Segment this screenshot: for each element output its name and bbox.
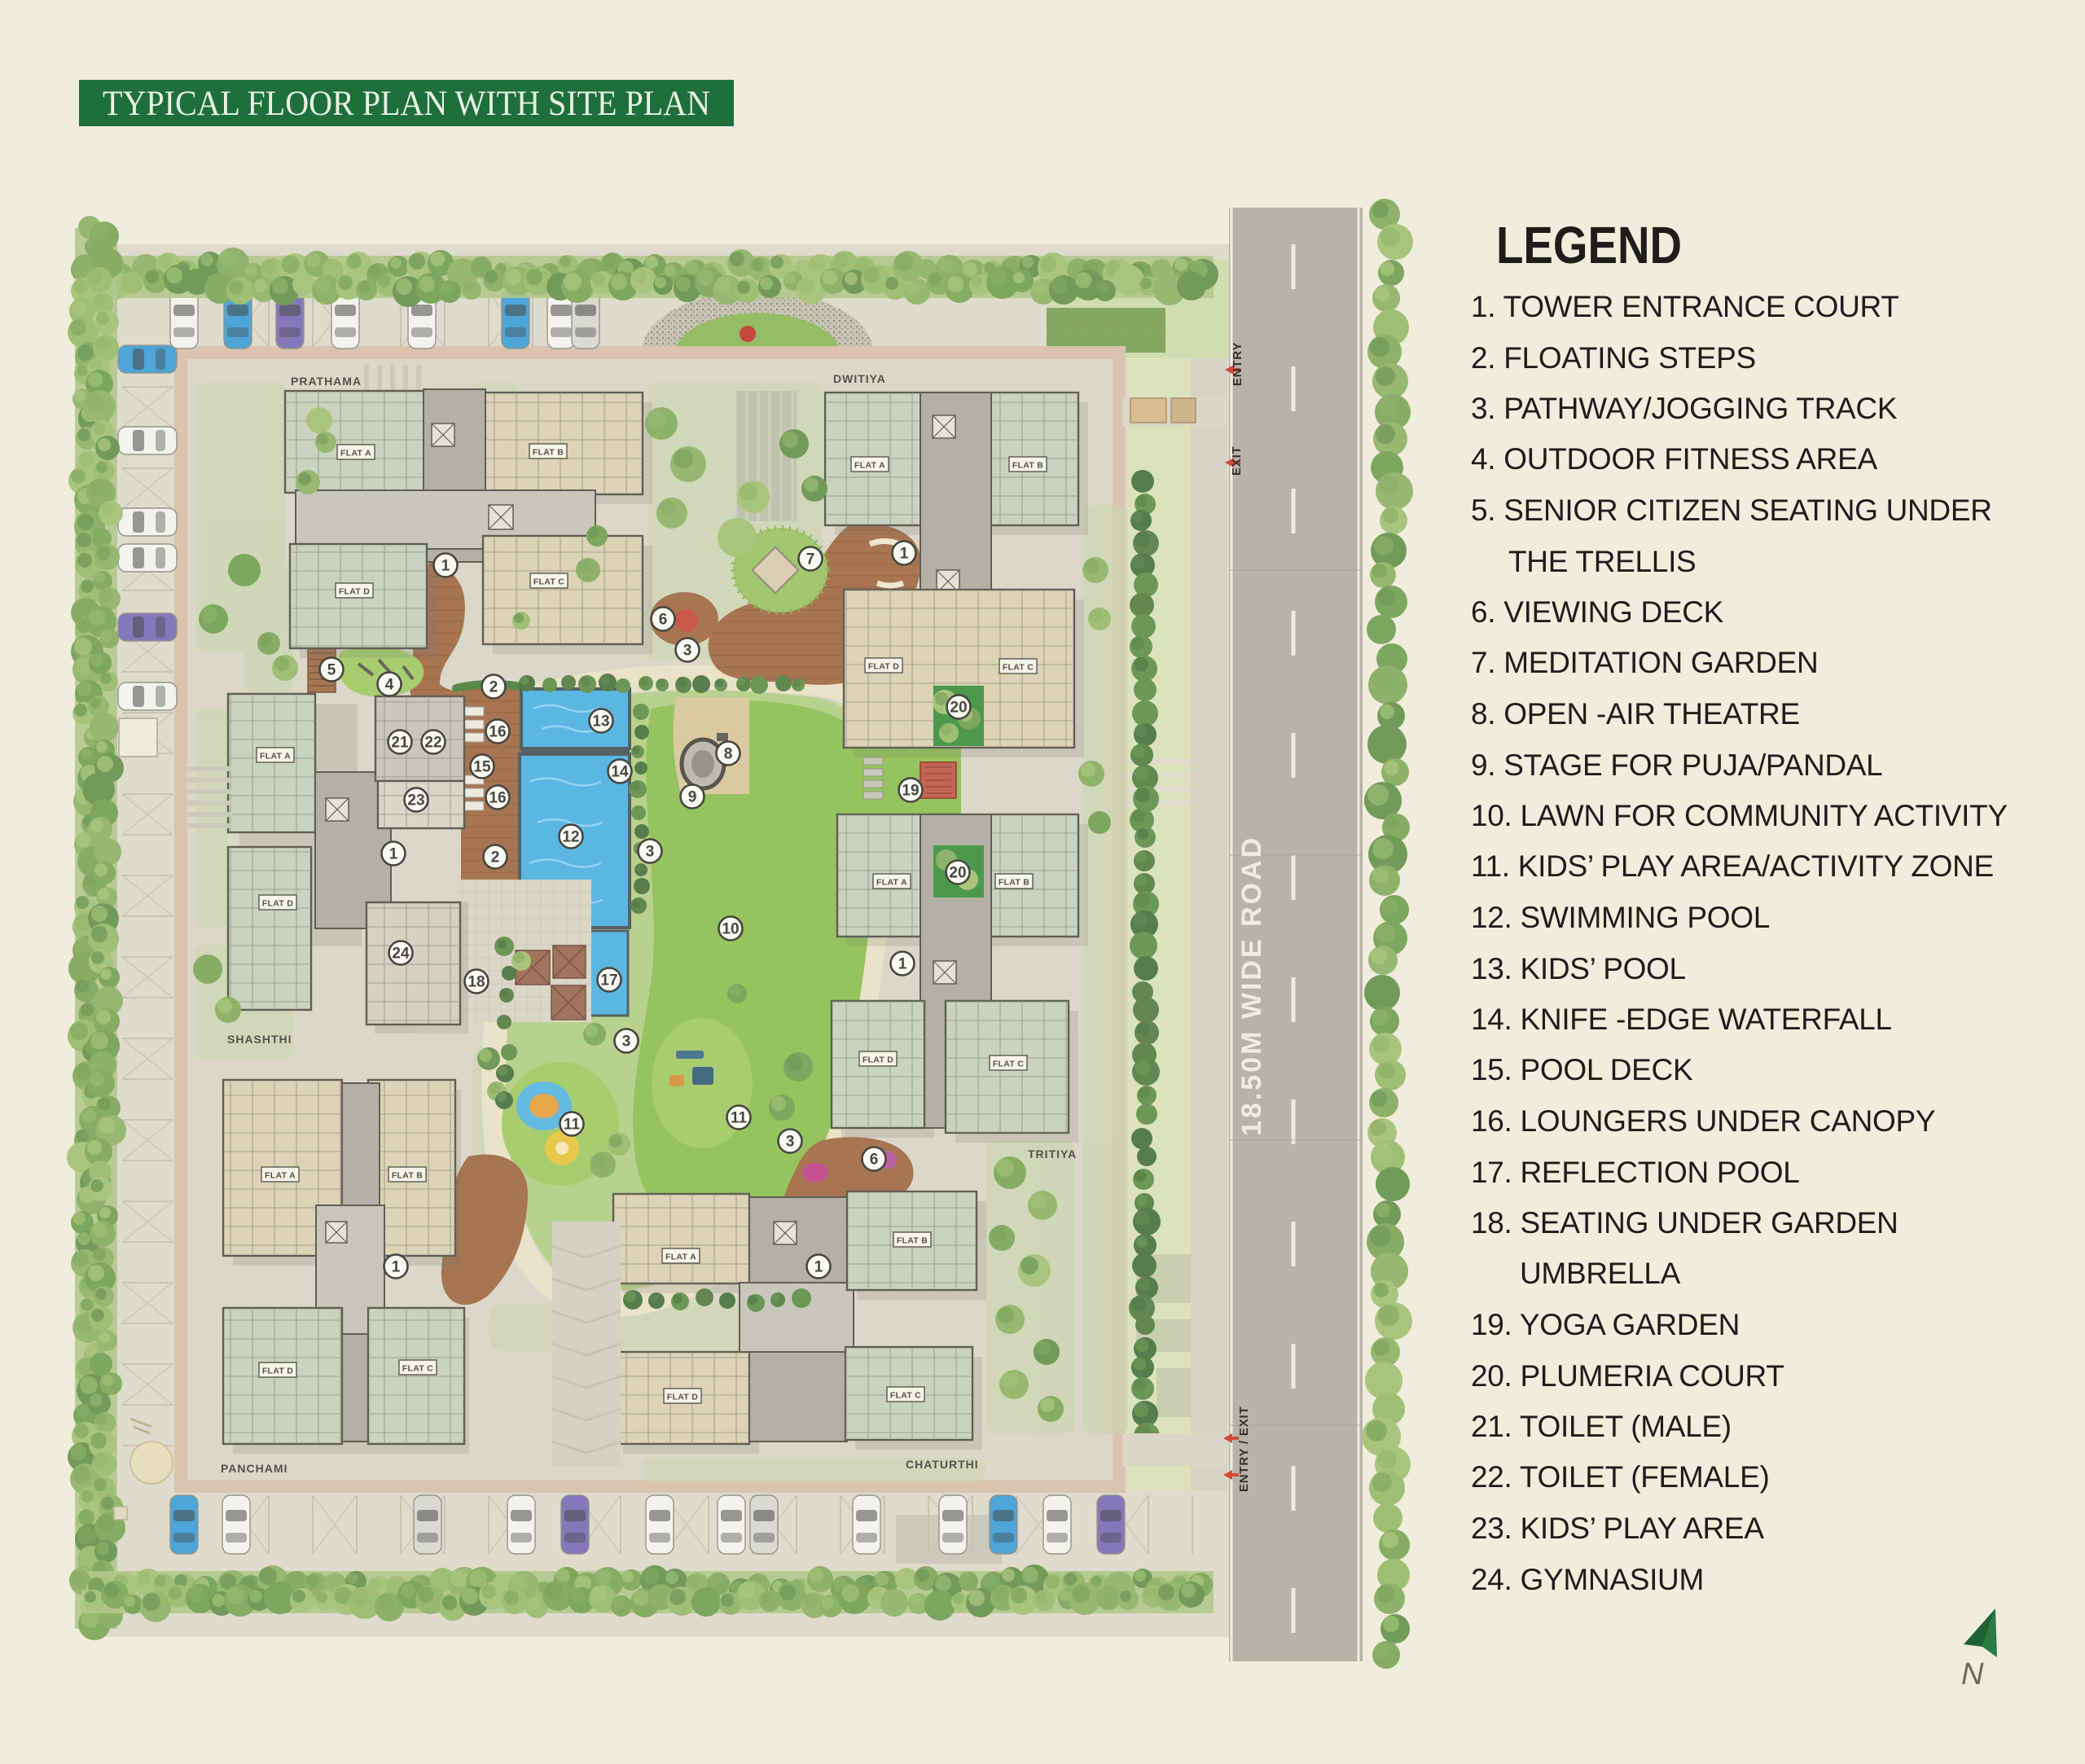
svg-text:9. STAGE FOR PUJA/PANDAL: 9. STAGE FOR PUJA/PANDAL [1471,748,1882,782]
svg-text:18. SEATING UNDER GARDEN: 18. SEATING UNDER GARDEN [1471,1206,1898,1240]
svg-text:TYPICAL FLOOR PLAN WITH SITE: TYPICAL FLOOR PLAN WITH SITE PLAN [103,85,710,123]
svg-text:3. PATHWAY/JOGGING TRACK: 3. PATHWAY/JOGGING TRACK [1471,392,1898,425]
svg-text:UMBRELLA: UMBRELLA [1520,1257,1681,1290]
svg-text:6. VIEWING DECK: 6. VIEWING DECK [1471,595,1724,629]
svg-text:LEGEND: LEGEND [1496,216,1682,274]
svg-text:23. KIDS’ PLAY AREA: 23. KIDS’ PLAY AREA [1471,1512,1764,1545]
svg-text:1. TOWER ENTRANCE COURT: 1. TOWER ENTRANCE COURT [1471,290,1899,323]
svg-text:24. GYMNASIUM: 24. GYMNASIUM [1471,1563,1704,1596]
svg-text:12. SWIMMING POOL: 12. SWIMMING POOL [1471,901,1770,934]
svg-text:N: N [1961,1657,1984,1692]
svg-text:8. OPEN -AIR THEATRE: 8. OPEN -AIR THEATRE [1471,697,1800,731]
svg-text:11. KIDS’ PLAY AREA/ACTIVITY: 11. KIDS’ PLAY AREA/ACTIVITY ZONE [1471,849,1994,883]
svg-text:7. MEDITATION GARDEN: 7. MEDITATION GARDEN [1471,646,1818,679]
svg-text:4. OUTDOOR FITNESS AREA: 4. OUTDOOR FITNESS AREA [1471,442,1877,476]
svg-text:21. TOILET (MALE): 21. TOILET (MALE) [1471,1410,1732,1443]
svg-text:2. FLOATING STEPS: 2. FLOATING STEPS [1471,341,1756,375]
svg-text:15. POOL DECK: 15. POOL DECK [1471,1053,1693,1086]
svg-text:5. SENIOR CITIZEN SEATING UNDE: 5. SENIOR CITIZEN SEATING UNDER [1471,494,1992,527]
svg-text:14. KNIFE -EDGE WATERFALL: 14. KNIFE -EDGE WATERFALL [1471,1003,1892,1036]
svg-text:16. LOUNGERS UNDER CANOPY: 16. LOUNGERS UNDER CANOPY [1471,1104,1935,1138]
svg-text:19. YOGA GARDEN: 19. YOGA GARDEN [1471,1308,1740,1341]
svg-text:THE TRELLIS: THE TRELLIS [1508,545,1696,578]
svg-text:17. REFLECTION POOL: 17. REFLECTION POOL [1471,1156,1799,1189]
svg-text:22. TOILET (FEMALE): 22. TOILET (FEMALE) [1471,1460,1770,1494]
svg-text:20. PLUMERIA COURT: 20. PLUMERIA COURT [1471,1359,1784,1393]
svg-text:10. LAWN FOR COMMUNITY ACTIVIT: 10. LAWN FOR COMMUNITY ACTIVITY [1471,799,2008,832]
svg-text:13. KIDS’ POOL: 13. KIDS’ POOL [1471,952,1686,985]
